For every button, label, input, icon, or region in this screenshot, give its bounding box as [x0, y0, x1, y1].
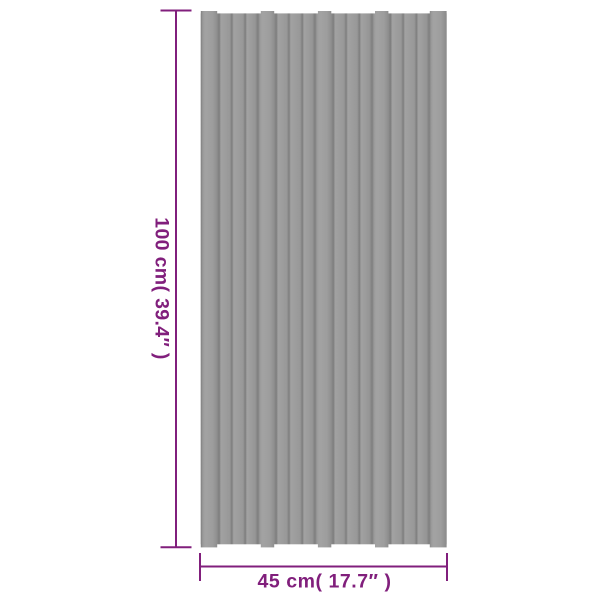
svg-text:45 cm( 17.7″ ): 45 cm( 17.7″ ) [257, 571, 391, 593]
svg-text:100 cm( 39.4″ ): 100 cm( 39.4″ ) [151, 217, 173, 360]
